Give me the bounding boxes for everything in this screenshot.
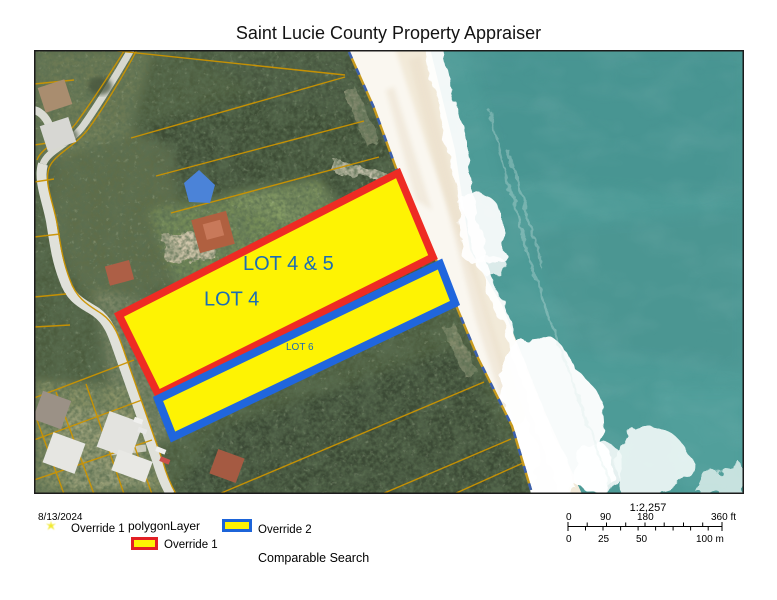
svg-text:100 m: 100 m	[696, 534, 724, 545]
svg-text:0: 0	[566, 534, 572, 545]
svg-text:360 ft: 360 ft	[711, 512, 736, 523]
svg-text:25: 25	[598, 534, 610, 545]
svg-text:LOT 6: LOT 6	[286, 342, 314, 353]
svg-text:180: 180	[637, 512, 654, 523]
svg-text:LOT 4 & 5: LOT 4 & 5	[243, 253, 334, 275]
svg-text:90: 90	[600, 512, 612, 523]
svg-text:50: 50	[636, 534, 648, 545]
svg-text:LOT 4: LOT 4	[204, 289, 259, 311]
svg-text:0: 0	[566, 512, 572, 523]
